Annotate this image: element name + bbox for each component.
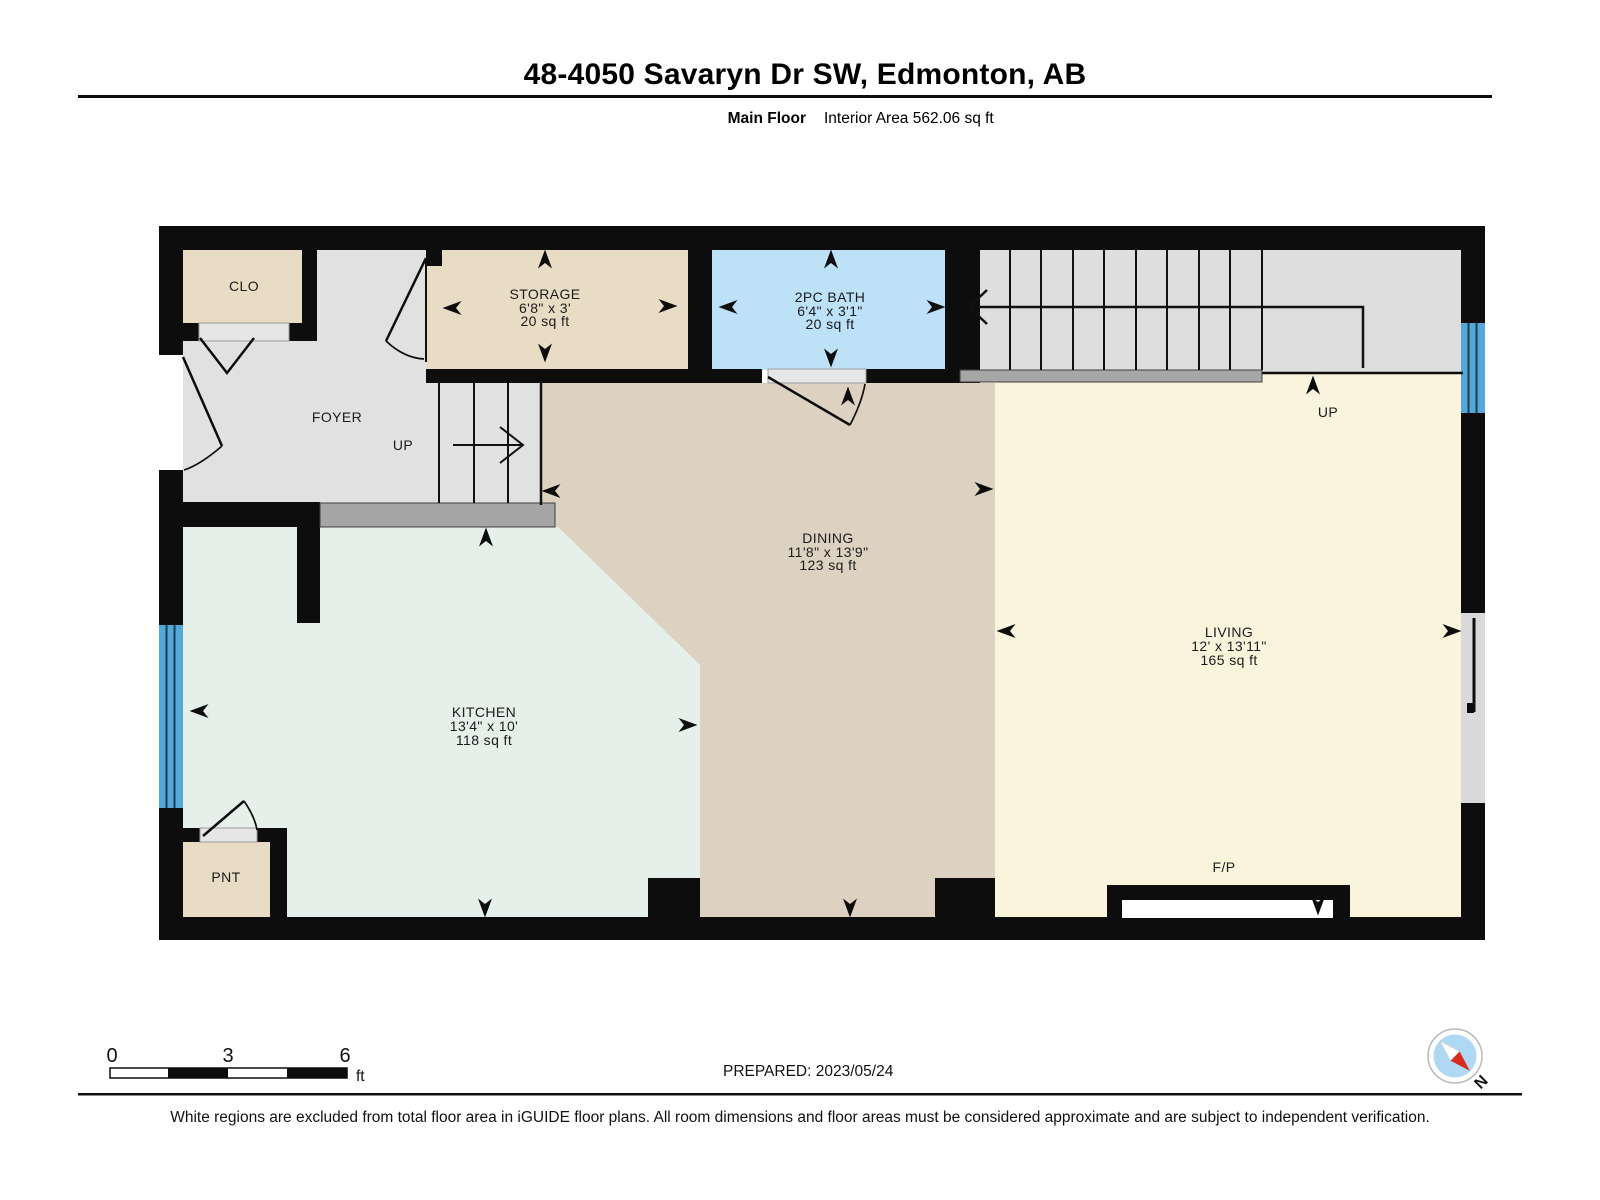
kitchen-area: 118 sq ft [456,732,512,748]
room-floors [182,249,1463,918]
wall-closet-stub-right [289,323,317,341]
storage-area: 20 sq ft [520,313,569,329]
fireplace-inner [1122,900,1333,918]
floor-label: Main Floor [728,110,806,127]
wall-stub-dining-living [935,878,995,918]
floorplan-canvas: 48-4050 Savaryn Dr SW, Edmonton, AB Main… [0,0,1600,1200]
scale-tick-6: 6 [339,1045,350,1067]
floorplan-page: 48-4050 Savaryn Dr SW, Edmonton, AB Main… [0,0,1600,1200]
pantry-label: PNT [211,869,240,885]
living-area: 165 sq ft [1200,652,1257,668]
landing-window [1461,323,1485,413]
scale-bar-segment [287,1068,347,1078]
prepared-date: PREPARED: 2023/05/24 [723,1063,894,1080]
footer-divider [78,1093,1522,1096]
wall-bottom [159,917,1485,940]
patio-door-handle [1467,703,1474,713]
fireplace-label: F/P [1213,859,1236,875]
scale-bar: 0 3 6 ft [106,1045,365,1085]
scale-unit-label: ft [356,1068,365,1085]
title-divider [78,95,1492,98]
upper-stair-landing-floor [980,249,1463,375]
kitchen-window [159,625,183,808]
entry-door-opening [159,355,183,470]
page-title: 48-4050 Savaryn Dr SW, Edmonton, AB [524,58,1087,91]
wall-top [159,226,1485,250]
bath-threshold [768,369,866,383]
kitchen-halfwall [320,503,555,527]
wall-kitchen-stub [297,502,320,623]
wall-pantry-right [270,828,287,918]
foyer-stairs-up-label: UP [393,437,413,453]
wall-storage-stub-top [426,249,442,266]
wall-pantry-stub-left [183,828,200,842]
wall-storage-bath-divider [688,249,712,383]
footer-disclaimer: White regions are excluded from total fl… [170,1109,1430,1126]
interior-area-label: Interior Area 562.06 sq ft [824,110,994,127]
wall-stub-kitchen-dining [648,878,700,918]
dining-area: 123 sq ft [799,557,856,573]
bath-area: 20 sq ft [805,316,854,332]
wall-bath-stairs-divider [945,226,980,383]
closet-label: CLO [229,278,259,294]
scale-tick-0: 0 [106,1045,117,1067]
foyer-label: FOYER [312,409,362,425]
closet-threshold [199,323,289,341]
scale-tick-3: 3 [222,1045,233,1067]
scale-bar-segment [168,1068,228,1078]
landing-stairs-up-label: UP [1318,404,1338,420]
compass-icon: N [1428,1029,1491,1092]
stair-edge-bar [960,370,1262,382]
wall-closet-stub-left [177,323,199,341]
